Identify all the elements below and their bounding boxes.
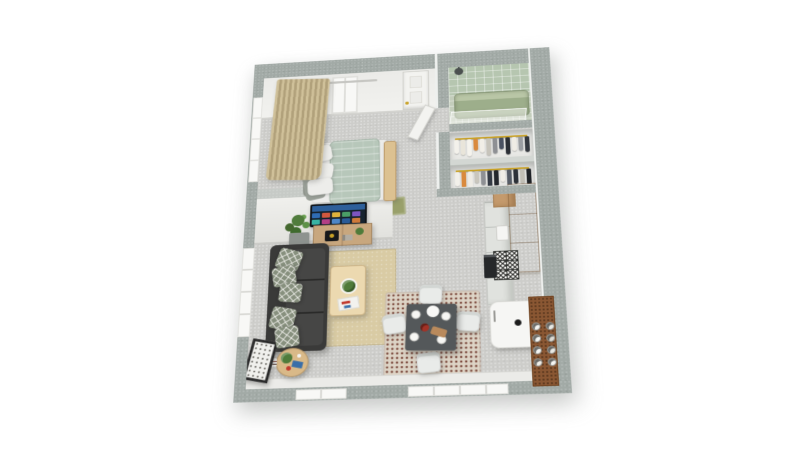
magazine-blue bbox=[344, 305, 351, 309]
cl-item bbox=[468, 171, 473, 187]
magazines bbox=[337, 296, 359, 311]
cl-item bbox=[486, 138, 491, 155]
kitchen-oven bbox=[484, 254, 497, 278]
tvt-item bbox=[312, 213, 320, 218]
tvt-item bbox=[342, 212, 350, 217]
tv-app-grid bbox=[312, 204, 366, 226]
bed-duvet bbox=[329, 138, 380, 204]
kitchen-bar-counter bbox=[528, 296, 559, 387]
cl-item bbox=[454, 140, 459, 154]
cl-item bbox=[461, 172, 466, 188]
apartment-plan bbox=[233, 47, 572, 403]
dining-table bbox=[405, 304, 457, 351]
fridge-handle bbox=[493, 310, 495, 322]
dining-chair-east bbox=[456, 311, 481, 332]
cl-item bbox=[505, 137, 510, 154]
record-player bbox=[325, 230, 339, 241]
plate bbox=[409, 332, 419, 341]
console-books bbox=[342, 234, 352, 240]
bst-item bbox=[506, 251, 517, 260]
throw-pillow bbox=[278, 283, 303, 303]
tvt-item bbox=[332, 212, 340, 217]
tvt-item bbox=[342, 218, 350, 223]
plate bbox=[411, 310, 421, 319]
side-table-deco bbox=[297, 354, 301, 358]
throw-pillow bbox=[274, 325, 300, 349]
door-panel bbox=[410, 91, 422, 104]
bed-foot-bench bbox=[383, 141, 396, 201]
kitchen-sink bbox=[496, 225, 509, 241]
bt-item bbox=[533, 358, 543, 367]
record-disc bbox=[329, 234, 334, 238]
south-window-left bbox=[295, 388, 346, 400]
bt-item bbox=[545, 322, 554, 330]
plate bbox=[441, 312, 451, 321]
cl-item bbox=[512, 137, 517, 151]
door-knob bbox=[405, 102, 409, 105]
kitchen-backsplash bbox=[493, 250, 519, 280]
tvt-item bbox=[352, 218, 360, 223]
tvt-item bbox=[352, 211, 360, 216]
cl-item bbox=[455, 172, 460, 187]
cl-item bbox=[480, 139, 485, 153]
bt-item bbox=[547, 358, 557, 367]
tvt-item bbox=[312, 220, 320, 225]
cl-item bbox=[494, 170, 499, 186]
cl-item bbox=[492, 138, 497, 154]
cl-item bbox=[520, 169, 525, 184]
pitcher bbox=[427, 306, 440, 318]
bt-item bbox=[546, 334, 556, 343]
bt-item bbox=[532, 346, 541, 355]
tvt-item bbox=[322, 213, 330, 218]
console-plant bbox=[355, 227, 363, 235]
floor-plan-render bbox=[0, 0, 800, 451]
magazine-red bbox=[341, 301, 350, 305]
cl-item bbox=[473, 139, 478, 151]
dining-chair-west bbox=[381, 312, 407, 335]
coffee-table bbox=[329, 265, 366, 317]
bathroom-west-wall-lower bbox=[436, 132, 451, 189]
cl-item bbox=[499, 138, 504, 150]
cl-item bbox=[518, 137, 523, 151]
door-panel bbox=[410, 76, 422, 88]
serving-board bbox=[430, 326, 448, 338]
cl-item bbox=[525, 136, 530, 152]
dining-chair-north bbox=[419, 285, 443, 304]
cl-item bbox=[513, 169, 518, 184]
cooking-pot bbox=[420, 323, 429, 331]
side-table-plant bbox=[281, 352, 293, 363]
curtains bbox=[266, 79, 331, 180]
bst-item bbox=[506, 260, 518, 269]
bst-item bbox=[507, 270, 519, 279]
bt-item bbox=[546, 346, 556, 355]
cl-item bbox=[461, 140, 466, 156]
bt-item bbox=[531, 322, 540, 330]
cl-item bbox=[487, 170, 492, 187]
cl-item bbox=[467, 139, 472, 156]
dining-chair-south bbox=[416, 351, 442, 374]
tvt-item bbox=[322, 219, 330, 224]
bt-item bbox=[532, 334, 541, 343]
cl-item bbox=[481, 171, 486, 186]
side-table-candle bbox=[286, 366, 291, 371]
tvt-item bbox=[332, 219, 340, 224]
side-table-book bbox=[291, 360, 303, 368]
fridge-kettle bbox=[514, 319, 521, 326]
bathroom-west-wall-upper bbox=[435, 53, 449, 108]
cl-item bbox=[474, 171, 479, 183]
cl-item bbox=[500, 170, 505, 182]
bed-pillow bbox=[307, 177, 333, 196]
